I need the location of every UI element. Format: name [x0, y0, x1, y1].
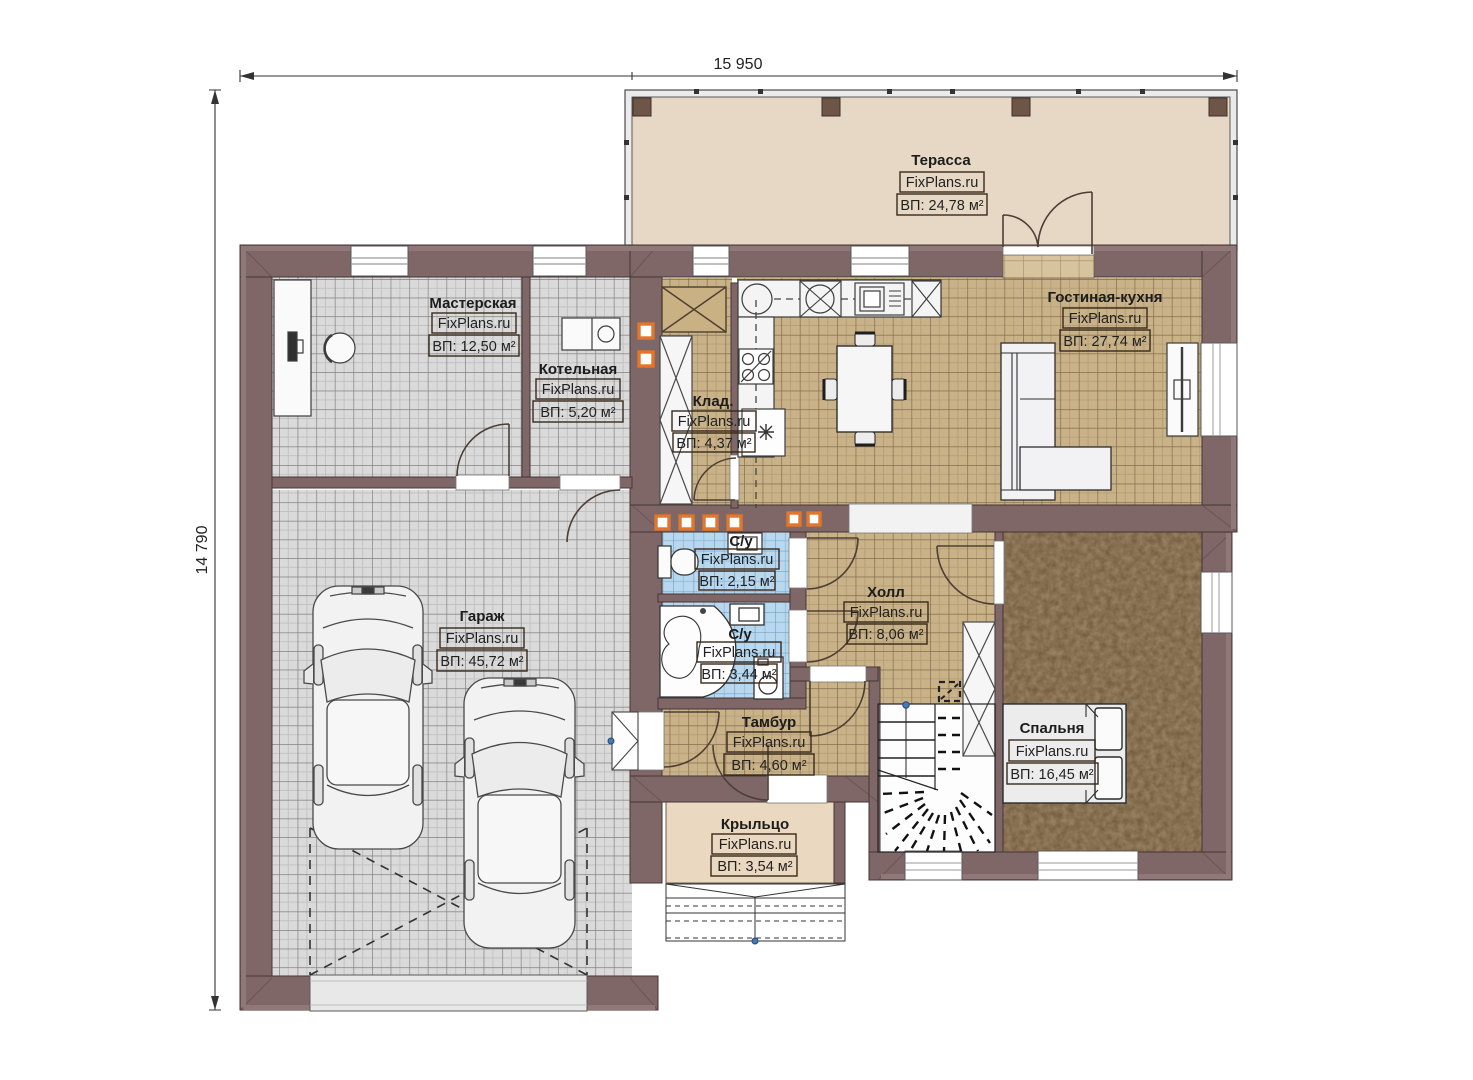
svg-text:ВП: 45,72 м²: ВП: 45,72 м²	[440, 654, 523, 670]
svg-text:ВП: 16,45 м²: ВП: 16,45 м²	[1010, 767, 1093, 783]
svg-text:Холл: Холл	[867, 584, 905, 601]
svg-text:ВП: 5,20 м²: ВП: 5,20 м²	[540, 405, 615, 421]
svg-text:FixPlans.ru: FixPlans.ru	[438, 316, 511, 332]
svg-text:ВП: 24,78 м²: ВП: 24,78 м²	[900, 198, 983, 214]
svg-text:FixPlans.ru: FixPlans.ru	[850, 605, 923, 621]
svg-text:Гараж: Гараж	[460, 608, 505, 625]
svg-text:Клад.: Клад.	[693, 393, 734, 410]
svg-text:Тамбур: Тамбур	[742, 714, 796, 731]
svg-text:15 950: 15 950	[714, 56, 763, 73]
svg-text:FixPlans.ru: FixPlans.ru	[542, 382, 615, 398]
svg-text:ВП: 8,06 м²: ВП: 8,06 м²	[848, 627, 923, 643]
svg-text:FixPlans.ru: FixPlans.ru	[906, 175, 979, 191]
svg-text:FixPlans.ru: FixPlans.ru	[1016, 744, 1089, 760]
svg-text:ВП: 27,74 м²: ВП: 27,74 м²	[1063, 334, 1146, 350]
svg-text:FixPlans.ru: FixPlans.ru	[1069, 311, 1142, 327]
svg-text:FixPlans.ru: FixPlans.ru	[446, 631, 519, 647]
svg-text:ВП: 4,37 м²: ВП: 4,37 м²	[676, 436, 751, 452]
svg-text:14 790: 14 790	[194, 525, 211, 574]
svg-text:ВП: 3,54 м²: ВП: 3,54 м²	[717, 859, 792, 875]
svg-text:Терасса: Терасса	[911, 152, 971, 169]
svg-text:ВП: 2,15 м²: ВП: 2,15 м²	[699, 574, 774, 590]
svg-text:FixPlans.ru: FixPlans.ru	[703, 645, 776, 661]
svg-text:Крыльцо: Крыльцо	[721, 816, 789, 833]
svg-text:Мастерская: Мастерская	[429, 295, 516, 312]
svg-text:FixPlans.ru: FixPlans.ru	[678, 414, 751, 430]
svg-text:Гостиная-кухня: Гостиная-кухня	[1048, 289, 1163, 306]
svg-text:ВП: 4,60 м²: ВП: 4,60 м²	[731, 758, 806, 774]
svg-text:С/у: С/у	[729, 533, 753, 550]
svg-text:FixPlans.ru: FixPlans.ru	[701, 552, 774, 568]
svg-text:ВП: 3,44 м²: ВП: 3,44 м²	[701, 667, 776, 683]
svg-text:Котельная: Котельная	[539, 361, 618, 378]
svg-text:FixPlans.ru: FixPlans.ru	[719, 837, 792, 853]
svg-text:С/у: С/у	[728, 626, 752, 643]
svg-text:Спальня: Спальня	[1020, 720, 1085, 737]
svg-text:FixPlans.ru: FixPlans.ru	[733, 735, 806, 751]
svg-text:ВП: 12,50 м²: ВП: 12,50 м²	[432, 339, 515, 355]
